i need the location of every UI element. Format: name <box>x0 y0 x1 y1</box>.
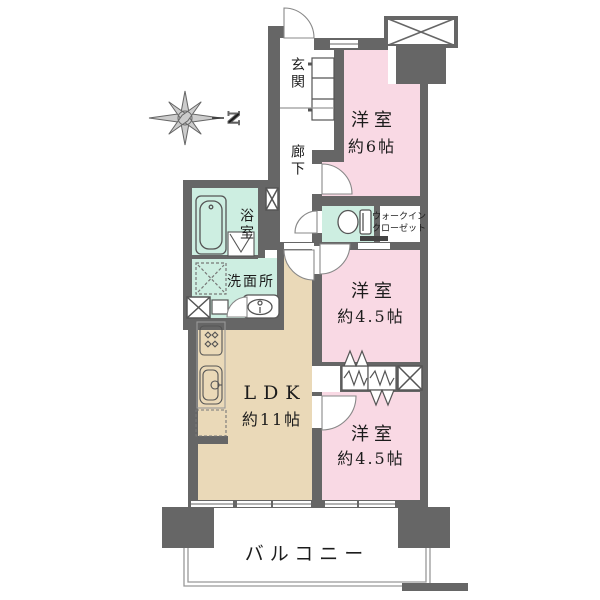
toilet-icon <box>338 210 371 234</box>
bedroom45-mid-size: 約4.5帖 <box>337 307 404 326</box>
duct-shaft <box>386 18 456 84</box>
entrance-door-swing <box>284 8 314 38</box>
compass-north-label: N <box>224 111 243 126</box>
ldk-size: 約11帖 <box>242 410 302 429</box>
floorplan-canvas: N 玄関 廊下 浴室 洗面所 ウォークイン クローゼット 洋室 約6帖 洋室 約… <box>0 0 600 600</box>
compass: N <box>149 91 243 145</box>
wic-label-line2: クローゼット <box>372 222 426 234</box>
entrance-label: 玄関 <box>289 56 305 91</box>
bedroom45-mid-name: 洋室 <box>351 281 397 302</box>
bedroom45-low-size: 約4.5帖 <box>337 449 404 468</box>
floorplan-drawing: N 玄関 廊下 浴室 洗面所 ウォークイン クローゼット 洋室 約6帖 洋室 約… <box>0 0 600 600</box>
shoe-cabinet-icon <box>308 58 334 120</box>
pillar-left <box>162 507 214 548</box>
bedroom6-name: 洋室 <box>351 110 397 131</box>
washroom-door-panel <box>212 300 228 314</box>
balcony-partition <box>402 583 468 591</box>
toilet-door-swing <box>295 211 317 233</box>
wic-sliding-door <box>360 236 388 241</box>
ldk-name: LDK <box>243 382 306 404</box>
shaft-block <box>396 46 446 84</box>
washbasin-icon <box>243 295 279 318</box>
balcony-label: バルコニー <box>245 543 370 565</box>
bedroom45-low-name: 洋室 <box>351 424 397 445</box>
bathroom-label: 浴室 <box>238 208 254 242</box>
bedroom6-size: 約6帖 <box>348 137 396 156</box>
pillar-right <box>398 507 450 548</box>
washroom-label: 洗面所 <box>227 274 275 290</box>
corridor-label: 廊下 <box>289 143 305 178</box>
wic-label-line1: ウォークイン <box>372 211 426 222</box>
